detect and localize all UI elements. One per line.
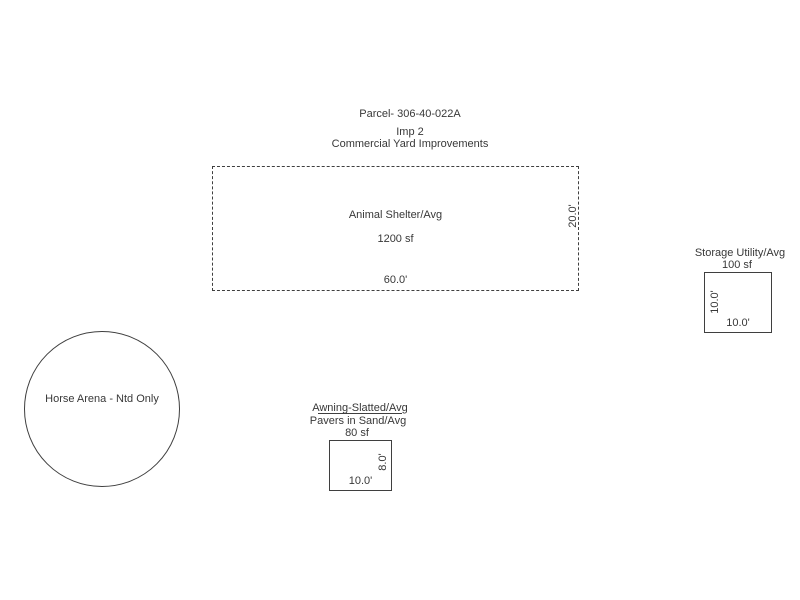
- animal-shelter-label: Animal Shelter/Avg: [213, 209, 578, 221]
- horse-arena-outline: Horse Arena - Ntd Only: [24, 331, 180, 487]
- animal-shelter-area: 1200 sf: [213, 233, 578, 245]
- improvement-number: Imp 2: [260, 126, 560, 138]
- animal-shelter-bottom-dim: 60.0': [213, 274, 578, 286]
- animal-shelter-outline: Animal Shelter/Avg 1200 sf 60.0' 20.0': [212, 166, 579, 291]
- horse-arena-label: Horse Arena - Ntd Only: [25, 393, 179, 405]
- pavers-label: Pavers in Sand/Avg: [268, 415, 448, 427]
- awning-side-dim: 8.0': [377, 452, 389, 472]
- awning-bottom-dim: 10.0': [330, 475, 391, 487]
- awning-outline: 8.0' 10.0': [329, 440, 392, 491]
- sketch-title: Commercial Yard Improvements: [260, 138, 560, 150]
- storage-utility-bottom-dim: 10.0': [705, 317, 771, 329]
- storage-utility-side-dim: 10.0': [709, 289, 721, 315]
- animal-shelter-side-dim: 20.0': [567, 204, 579, 228]
- storage-utility-outline: 10.0' 10.0': [704, 272, 772, 333]
- parcel-id: Parcel- 306-40-022A: [260, 108, 560, 120]
- storage-utility-label: Storage Utility/Avg: [650, 247, 800, 259]
- sketch-canvas: Parcel- 306-40-022A Imp 2 Commercial Yar…: [0, 0, 800, 600]
- awning-label-divider: [318, 413, 402, 414]
- awning-area: 80 sf: [267, 427, 447, 439]
- storage-utility-area: 100 sf: [647, 259, 800, 271]
